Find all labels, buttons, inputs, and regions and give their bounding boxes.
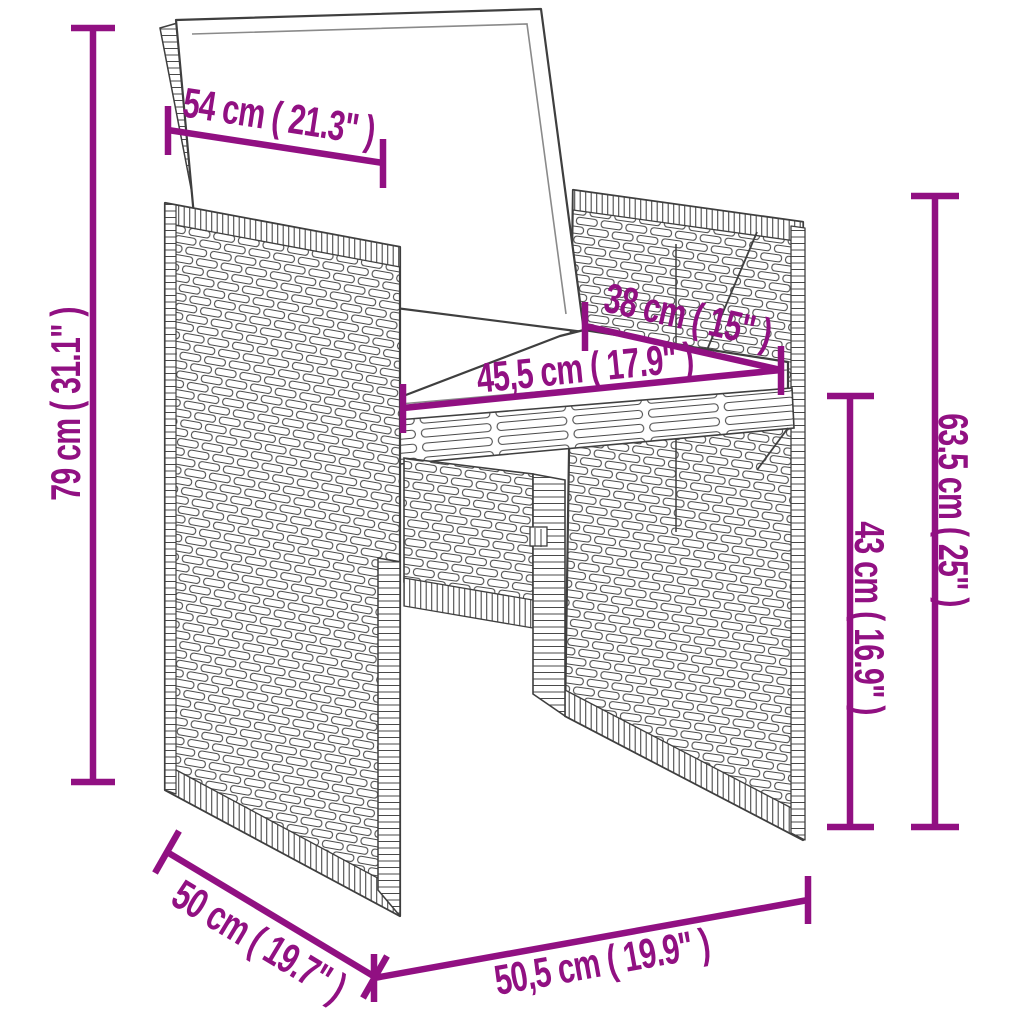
chair-line-drawing [0,0,1024,1024]
dimension-label-total-height: 79 cm ( 31.1" ) [42,307,90,500]
chair-underseat-support [404,458,565,716]
dimension-label-side-height: 63,5 cm ( 25" ) [929,413,977,606]
front-left-leg [378,558,400,916]
seat-clip [530,527,547,546]
chair-left-side-panel [165,203,400,916]
chair-right-side-panel [565,190,805,840]
dimension-diagram: 54 cm ( 21.3" ) 79 cm ( 31.1" ) 38 cm ( … [0,0,1024,1024]
dimension-label-seat-height: 43 cm ( 16.9" ) [845,521,893,714]
